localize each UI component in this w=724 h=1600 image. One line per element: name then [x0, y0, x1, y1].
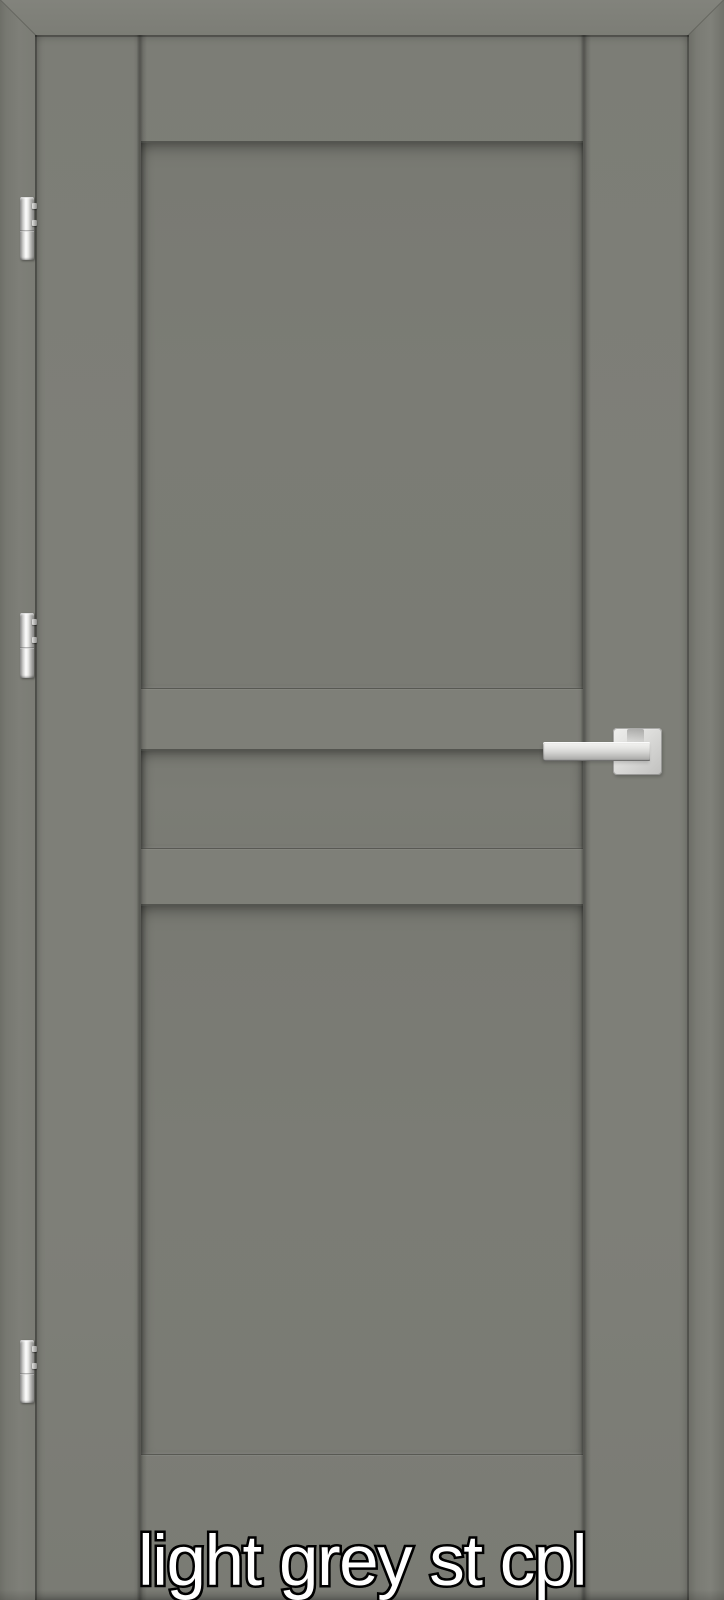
- door-frame-head: [0, 0, 724, 35]
- hinge-bottom-icon: [20, 1340, 34, 1403]
- door-middle-strip-panel: [141, 749, 583, 849]
- stile-seam-right: [577, 35, 591, 1600]
- door-product-photo: light grey st cpl: [0, 0, 724, 1600]
- hinge-pin-icon: [32, 1346, 37, 1352]
- door-upper-panel: [141, 141, 583, 689]
- hinge-pin-icon: [32, 1363, 37, 1369]
- hinge-pin-icon: [32, 220, 37, 226]
- hinge-pin-icon: [32, 637, 37, 643]
- stile-seam-left: [133, 35, 147, 1600]
- door-leaf: [35, 35, 689, 1600]
- handle-neck-shadow: [627, 729, 644, 743]
- hinge-top-icon: [20, 197, 34, 260]
- door-lower-panel: [141, 904, 583, 1455]
- hinge-pin-icon: [32, 619, 37, 625]
- product-caption: light grey st cpl: [0, 1521, 724, 1600]
- hinge-pin-icon: [32, 203, 37, 209]
- door-handle-lever: [543, 742, 650, 761]
- hinge-middle-icon: [20, 613, 34, 678]
- door-frame-right-jamb: [689, 0, 724, 1600]
